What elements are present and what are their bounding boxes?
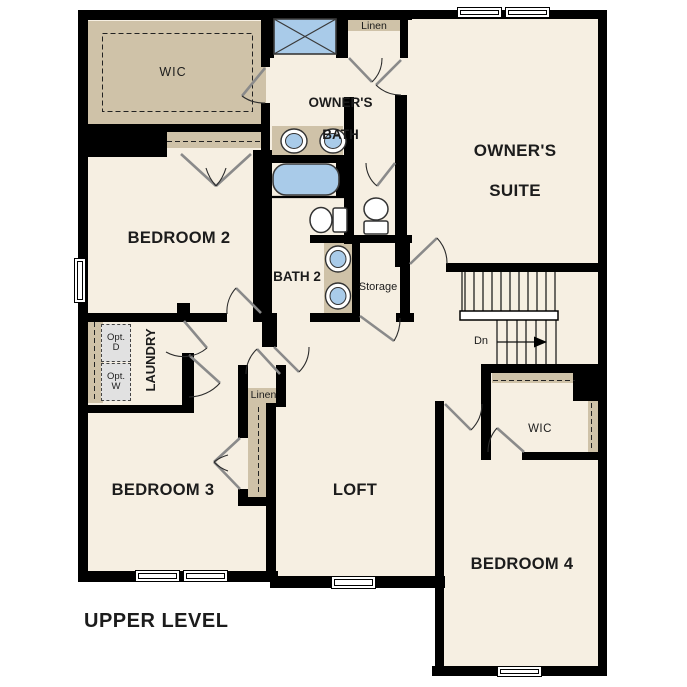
wall-owners-suite-left [395, 95, 407, 267]
opt-washer-line2: W [112, 382, 121, 393]
wall-bedroom2-bath2-divider [253, 150, 272, 322]
wall-bedroom3-closet-right [266, 403, 276, 506]
wall-laundry-right-stub [182, 353, 194, 413]
floor-bedroom4-wing [435, 365, 607, 676]
room-label-laundry: LAUNDRY [143, 320, 159, 400]
room-label-owners-suite: OWNER'S SUITE [435, 121, 575, 221]
room-label-wic-main: WIC [143, 65, 203, 79]
opt-dryer-line2: D [113, 343, 120, 354]
window-loft [331, 576, 376, 589]
wall-exterior-top-left [78, 10, 412, 20]
wall-bedroom3-closet-left-b [238, 489, 248, 506]
owners-suite-line1: OWNER'S [474, 141, 557, 160]
room-label-wic-bedroom4: WIC [510, 423, 570, 435]
bedroom3-closet-strip [248, 403, 268, 498]
wall-wic-right-upper [261, 13, 270, 67]
wall-loft-bedroom4-divider [435, 401, 444, 676]
room-label-bedroom2: BEDROOM 2 [109, 229, 249, 248]
window-owners-suite-1 [457, 7, 502, 18]
wall-tub-right-stub [336, 157, 344, 198]
wall-wic-bottom [165, 124, 270, 132]
window-bedroom3-1-pane [138, 573, 177, 579]
window-owners-suite-2-pane [508, 10, 547, 15]
wall-wic-bedroom4-bottom [522, 452, 607, 460]
closet-label-linen-hall: Linen [246, 389, 281, 401]
optional-dryer-box: Opt. D [101, 324, 131, 362]
wall-stair-bottom [482, 364, 577, 373]
bedroom2-closet-shelf [165, 131, 263, 148]
closet-label-linen-upper: Linen [348, 20, 400, 32]
owners-bath-line1: OWNER'S [309, 95, 373, 110]
window-bedroom3-2-pane [186, 573, 225, 579]
wall-storage-left [352, 238, 360, 322]
wall-wic-bedroom4-left [481, 364, 491, 460]
window-bedroom4 [497, 666, 542, 677]
wall-wic-bottom-block [78, 124, 167, 157]
window-bedroom2-pane [77, 261, 83, 300]
room-label-bedroom4: BEDROOM 4 [452, 555, 592, 574]
window-bedroom3-1 [135, 570, 180, 582]
window-owners-suite-2 [505, 7, 550, 18]
window-bedroom3-2 [183, 570, 228, 582]
window-bedroom2 [74, 258, 86, 303]
wall-exterior-right [598, 10, 607, 676]
room-label-loft: LOFT [305, 481, 405, 500]
room-label-owners-bath: OWNER'S BATH [283, 79, 383, 159]
window-loft-pane [334, 579, 373, 586]
room-label-bedroom3: BEDROOM 3 [93, 481, 233, 500]
optional-washer-box: Opt. W [101, 363, 131, 401]
room-label-bath2: BATH 2 [257, 269, 337, 284]
owners-suite-line2: SUITE [489, 181, 541, 200]
window-bedroom4-pane [500, 669, 539, 674]
wic-bedroom4-side-rod [588, 401, 598, 453]
window-owners-suite-1-pane [460, 10, 499, 15]
stairs-down-label: Dn [469, 335, 493, 347]
room-label-storage: Storage [352, 281, 404, 293]
owners-bath-line2: BATH [322, 127, 359, 142]
wall-owners-suite-bottom [446, 263, 607, 272]
wall-bedroom3-closet-left-a [238, 413, 248, 438]
floor-plan: WIC OWNER'S BATH Linen OWNER'S SUITE BED… [0, 0, 687, 687]
plan-title: UPPER LEVEL [84, 610, 228, 633]
wall-laundry-bottom [78, 405, 190, 413]
